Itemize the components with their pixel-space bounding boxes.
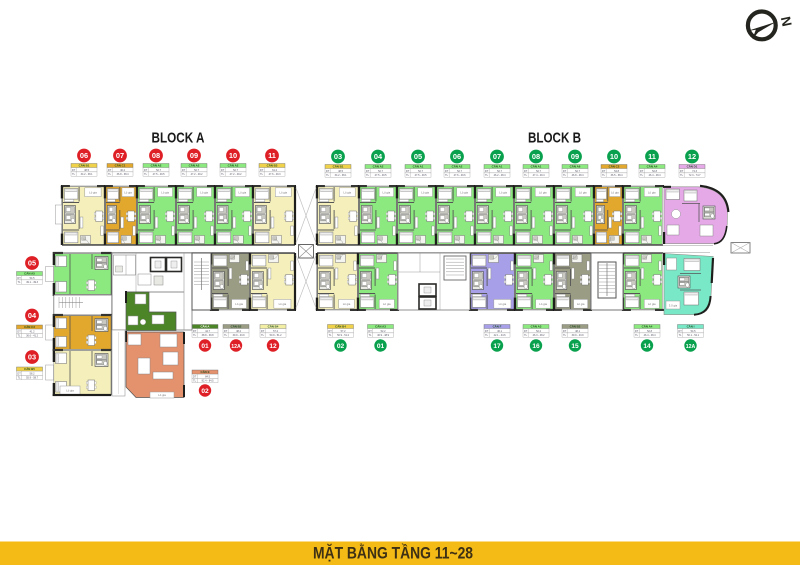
svg-text:CĂN A3: CĂN A3 <box>375 324 386 329</box>
svg-text:DT: DT <box>445 170 449 173</box>
svg-text:DT: DT <box>17 330 21 333</box>
svg-text:DT: DT <box>17 277 21 280</box>
svg-text:DT: DT <box>602 170 606 173</box>
svg-text:46.4 - 48.4: 46.4 - 48.4 <box>644 334 657 337</box>
svg-text:DT: DT <box>485 170 489 173</box>
svg-text:12A: 12A <box>686 344 696 350</box>
svg-text:57.2: 57.2 <box>273 330 278 333</box>
svg-text:CĂN A3: CĂN A3 <box>531 324 542 329</box>
svg-text:10: 10 <box>610 152 618 161</box>
svg-text:14: 14 <box>643 343 651 350</box>
svg-text:Lô gia: Lô gia <box>158 393 166 397</box>
svg-text:57.2: 57.2 <box>341 330 346 333</box>
svg-text:Lô gia: Lô gia <box>579 190 587 194</box>
svg-text:39.9 - 43.9: 39.9 - 43.9 <box>233 334 246 337</box>
svg-text:Lô gia: Lô gia <box>648 190 656 194</box>
svg-text:52.7: 52.7 <box>536 170 541 173</box>
svg-text:52.7: 52.7 <box>457 170 462 173</box>
svg-text:08: 08 <box>532 152 540 161</box>
svg-text:Lô gia: Lô gia <box>383 302 391 306</box>
svg-text:36.8 - 38.4: 36.8 - 38.4 <box>117 173 130 176</box>
svg-text:CĂN A2: CĂN A2 <box>228 163 239 168</box>
svg-text:DT: DT <box>224 330 228 333</box>
svg-text:CĂN A1: CĂN A1 <box>492 164 503 169</box>
svg-text:DT: DT <box>221 169 225 172</box>
svg-text:02: 02 <box>201 388 209 395</box>
svg-text:CĂN B1: CĂN B1 <box>333 164 344 169</box>
svg-text:CĂN A2: CĂN A2 <box>373 164 384 169</box>
svg-text:07: 07 <box>116 151 124 160</box>
svg-text:CĂN B5: CĂN B5 <box>24 366 35 371</box>
svg-text:DT: DT <box>182 169 186 172</box>
svg-text:58.2: 58.2 <box>30 372 35 375</box>
svg-text:61.2: 61.2 <box>272 169 277 172</box>
svg-text:DT: DT <box>144 169 148 172</box>
svg-text:46.3 - 48.2: 46.3 - 48.2 <box>533 334 546 337</box>
svg-text:Lô gia: Lô gia <box>279 302 287 306</box>
svg-text:Lô gia: Lô gia <box>124 190 132 194</box>
svg-text:48.2: 48.2 <box>236 330 241 333</box>
svg-text:09: 09 <box>571 152 579 161</box>
svg-text:11: 11 <box>268 151 276 160</box>
svg-text:09: 09 <box>190 151 198 160</box>
svg-text:CĂN A6: CĂN A6 <box>570 164 581 169</box>
svg-text:CĂN A: CĂN A <box>200 324 210 329</box>
svg-text:DT: DT <box>17 372 21 375</box>
svg-text:CĂN B2: CĂN B2 <box>231 324 242 329</box>
svg-text:47.6 - 49.6: 47.6 - 49.6 <box>454 174 467 177</box>
svg-text:04: 04 <box>374 152 383 161</box>
svg-text:42.1 - 44.6: 42.1 - 44.6 <box>494 334 507 337</box>
svg-text:74.3: 74.3 <box>692 170 697 173</box>
svg-text:47.5 - 49.5: 47.5 - 49.5 <box>375 174 388 177</box>
svg-text:11: 11 <box>648 152 656 161</box>
svg-text:46.9 - 48.9: 46.9 - 48.9 <box>377 334 390 337</box>
svg-text:DT: DT <box>193 330 197 333</box>
svg-text:54.8: 54.8 <box>614 170 619 173</box>
svg-text:52.2: 52.2 <box>536 330 541 333</box>
svg-text:DT: DT <box>72 169 76 172</box>
svg-text:Lô gia: Lô gia <box>279 190 287 194</box>
svg-text:41.2: 41.2 <box>30 330 35 333</box>
svg-text:54.5: 54.5 <box>30 277 35 280</box>
svg-text:84.5: 84.5 <box>205 375 210 378</box>
svg-text:DT: DT <box>108 169 112 172</box>
svg-text:DT: DT <box>328 330 332 333</box>
svg-text:DT: DT <box>485 330 489 333</box>
svg-text:DT: DT <box>563 170 567 173</box>
svg-text:Lô gia: Lô gia <box>89 190 97 194</box>
svg-text:Lô gia: Lô gia <box>539 190 547 194</box>
svg-text:06: 06 <box>453 152 461 161</box>
svg-text:50.1 - 52.1: 50.1 - 52.1 <box>687 334 700 337</box>
svg-text:DT: DT <box>640 170 644 173</box>
svg-text:CĂN B2: CĂN B2 <box>570 324 581 329</box>
svg-text:DT: DT <box>406 170 410 173</box>
svg-text:12: 12 <box>688 152 696 161</box>
svg-text:04: 04 <box>28 311 37 320</box>
svg-text:DT: DT <box>326 170 330 173</box>
svg-text:CĂN B1: CĂN B1 <box>79 163 90 168</box>
svg-text:34.2 - 38.1: 34.2 - 38.1 <box>81 173 94 176</box>
svg-text:CĂN A2: CĂN A2 <box>452 164 463 169</box>
svg-text:Lô gia: Lô gia <box>383 190 391 194</box>
svg-text:DT: DT <box>368 330 372 333</box>
svg-text:47.2 - 49.2: 47.2 - 49.2 <box>191 173 204 176</box>
svg-text:Lô gia: Lô gia <box>539 302 547 306</box>
svg-text:DT: DT <box>193 375 197 378</box>
svg-text:07: 07 <box>493 152 501 161</box>
svg-text:52.7: 52.7 <box>156 169 161 172</box>
svg-text:Lô gia: Lô gia <box>577 302 585 306</box>
svg-text:52.7: 52.7 <box>575 170 580 173</box>
svg-text:CĂN B3: CĂN B3 <box>267 163 278 168</box>
svg-text:DT: DT <box>635 330 639 333</box>
svg-text:CĂN D1: CĂN D1 <box>687 164 698 169</box>
svg-text:82.4 - 84.5: 82.4 - 84.5 <box>202 380 215 383</box>
svg-text:47.6 - 49.3: 47.6 - 49.3 <box>269 173 282 176</box>
svg-text:48.5: 48.5 <box>84 169 89 172</box>
svg-text:DT: DT <box>524 330 528 333</box>
svg-text:02: 02 <box>337 343 345 350</box>
svg-text:05: 05 <box>414 152 422 161</box>
svg-text:CĂN A5: CĂN A5 <box>24 271 35 276</box>
svg-text:52.7: 52.7 <box>497 170 502 173</box>
svg-text:Lô gia: Lô gia <box>343 302 351 306</box>
svg-text:17: 17 <box>493 343 501 350</box>
svg-text:DT: DT <box>524 170 528 173</box>
svg-text:CĂN A4: CĂN A4 <box>647 164 658 169</box>
svg-text:Lô gia: Lô gia <box>611 190 619 194</box>
svg-text:38.8 - 39.8: 38.8 - 39.8 <box>202 334 215 337</box>
svg-text:48.5: 48.5 <box>338 170 343 173</box>
svg-text:50.9 - 51.2: 50.9 - 51.2 <box>270 334 283 337</box>
svg-text:46.8 - 48.4: 46.8 - 48.4 <box>572 174 585 177</box>
svg-text:36.5 - 38.4: 36.5 - 38.4 <box>611 174 624 177</box>
svg-text:DT: DT <box>678 330 682 333</box>
svg-text:15: 15 <box>571 343 579 350</box>
svg-text:01: 01 <box>201 343 209 350</box>
svg-text:03: 03 <box>334 152 342 161</box>
svg-text:52.7: 52.7 <box>194 169 199 172</box>
svg-text:12A: 12A <box>231 344 241 350</box>
svg-text:CĂN B4: CĂN B4 <box>268 324 279 329</box>
svg-text:Lô gia: Lô gia <box>499 190 507 194</box>
svg-text:CĂN A2: CĂN A2 <box>189 163 200 168</box>
svg-text:Lô gia: Lô gia <box>499 302 507 306</box>
svg-text:05: 05 <box>28 258 36 267</box>
svg-text:52.7: 52.7 <box>418 170 423 173</box>
svg-text:48.1: 48.1 <box>575 330 580 333</box>
svg-text:CĂN A1: CĂN A1 <box>413 164 424 169</box>
svg-text:Lô gia: Lô gia <box>343 190 351 194</box>
svg-text:01: 01 <box>377 343 385 350</box>
svg-text:BLOCK B: BLOCK B <box>528 130 581 147</box>
svg-text:CĂN C1: CĂN C1 <box>115 163 126 168</box>
svg-text:DT: DT <box>563 330 567 333</box>
svg-text:06: 06 <box>80 151 88 160</box>
svg-text:52.7: 52.7 <box>378 170 383 173</box>
svg-text:08: 08 <box>152 151 160 160</box>
svg-text:CĂN A2: CĂN A2 <box>151 163 162 168</box>
svg-text:47.2 - 49.2: 47.2 - 49.2 <box>230 173 243 176</box>
svg-text:CĂN A4: CĂN A4 <box>642 324 653 329</box>
svg-text:Lô gia: Lô gia <box>460 190 468 194</box>
svg-text:Lô gia: Lô gia <box>66 389 74 393</box>
svg-text:39.9 - 43.9: 39.9 - 43.9 <box>572 334 585 337</box>
svg-text:3.0 gia: 3.0 gia <box>669 303 678 307</box>
svg-text:44.7: 44.7 <box>205 330 210 333</box>
svg-text:36.6 - 41.2: 36.6 - 41.2 <box>26 335 39 338</box>
svg-text:CĂN C2: CĂN C2 <box>609 164 620 169</box>
svg-text:Lô gia: Lô gia <box>235 302 243 306</box>
svg-text:Lô gia: Lô gia <box>239 190 247 194</box>
svg-text:Lô gia: Lô gia <box>200 190 208 194</box>
svg-text:CĂN F: CĂN F <box>493 324 502 329</box>
svg-text:47.5 - 49.5: 47.5 - 49.5 <box>153 173 166 176</box>
svg-text:DT: DT <box>680 170 684 173</box>
svg-text:DT: DT <box>260 169 264 172</box>
svg-text:BLOCK A: BLOCK A <box>152 130 205 147</box>
svg-text:12: 12 <box>269 343 277 350</box>
svg-text:50.9 - 51.2: 50.9 - 51.2 <box>337 334 350 337</box>
svg-text:CĂN B4: CĂN B4 <box>335 324 346 329</box>
svg-text:55.9 - 58.7: 55.9 - 58.7 <box>26 377 39 380</box>
svg-text:DT: DT <box>366 170 370 173</box>
svg-text:40.2: 40.2 <box>120 169 125 172</box>
svg-text:47.4 - 49.4: 47.4 - 49.4 <box>533 174 546 177</box>
svg-text:46.1: 46.1 <box>497 330 502 333</box>
svg-text:34.2 - 38.1: 34.2 - 38.1 <box>335 174 348 177</box>
svg-text:Lô gia: Lô gia <box>648 302 656 306</box>
svg-text:Lô gia: Lô gia <box>421 190 429 194</box>
svg-text:52.8: 52.8 <box>652 170 657 173</box>
svg-text:72.3 - 74.7: 72.3 - 74.7 <box>689 174 702 177</box>
svg-text:52.7: 52.7 <box>233 169 238 172</box>
svg-text:16: 16 <box>532 343 540 350</box>
svg-text:47.5 - 49.5: 47.5 - 49.5 <box>415 174 428 177</box>
svg-text:46.2 - 48.4: 46.2 - 48.4 <box>494 174 507 177</box>
svg-text:10: 10 <box>229 151 237 160</box>
svg-text:49.1 - 49.3: 49.1 - 49.3 <box>26 281 39 284</box>
svg-text:DT: DT <box>261 330 265 333</box>
svg-text:52.2: 52.2 <box>381 330 386 333</box>
svg-text:03: 03 <box>28 352 36 361</box>
svg-text:MẶT BẰNG TẦNG 11~28: MẶT BẰNG TẦNG 11~28 <box>313 544 473 563</box>
svg-text:Lô gia: Lô gia <box>161 190 169 194</box>
svg-text:CĂN E: CĂN E <box>201 369 210 374</box>
svg-text:CĂN A1: CĂN A1 <box>531 164 542 169</box>
svg-text:CĂN I: CĂN I <box>687 324 695 329</box>
svg-text:54.5: 54.5 <box>691 330 696 333</box>
svg-text:CĂN C3: CĂN C3 <box>24 324 35 329</box>
svg-text:52.8: 52.8 <box>647 330 652 333</box>
svg-text:46.4 - 48.4: 46.4 - 48.4 <box>649 174 662 177</box>
